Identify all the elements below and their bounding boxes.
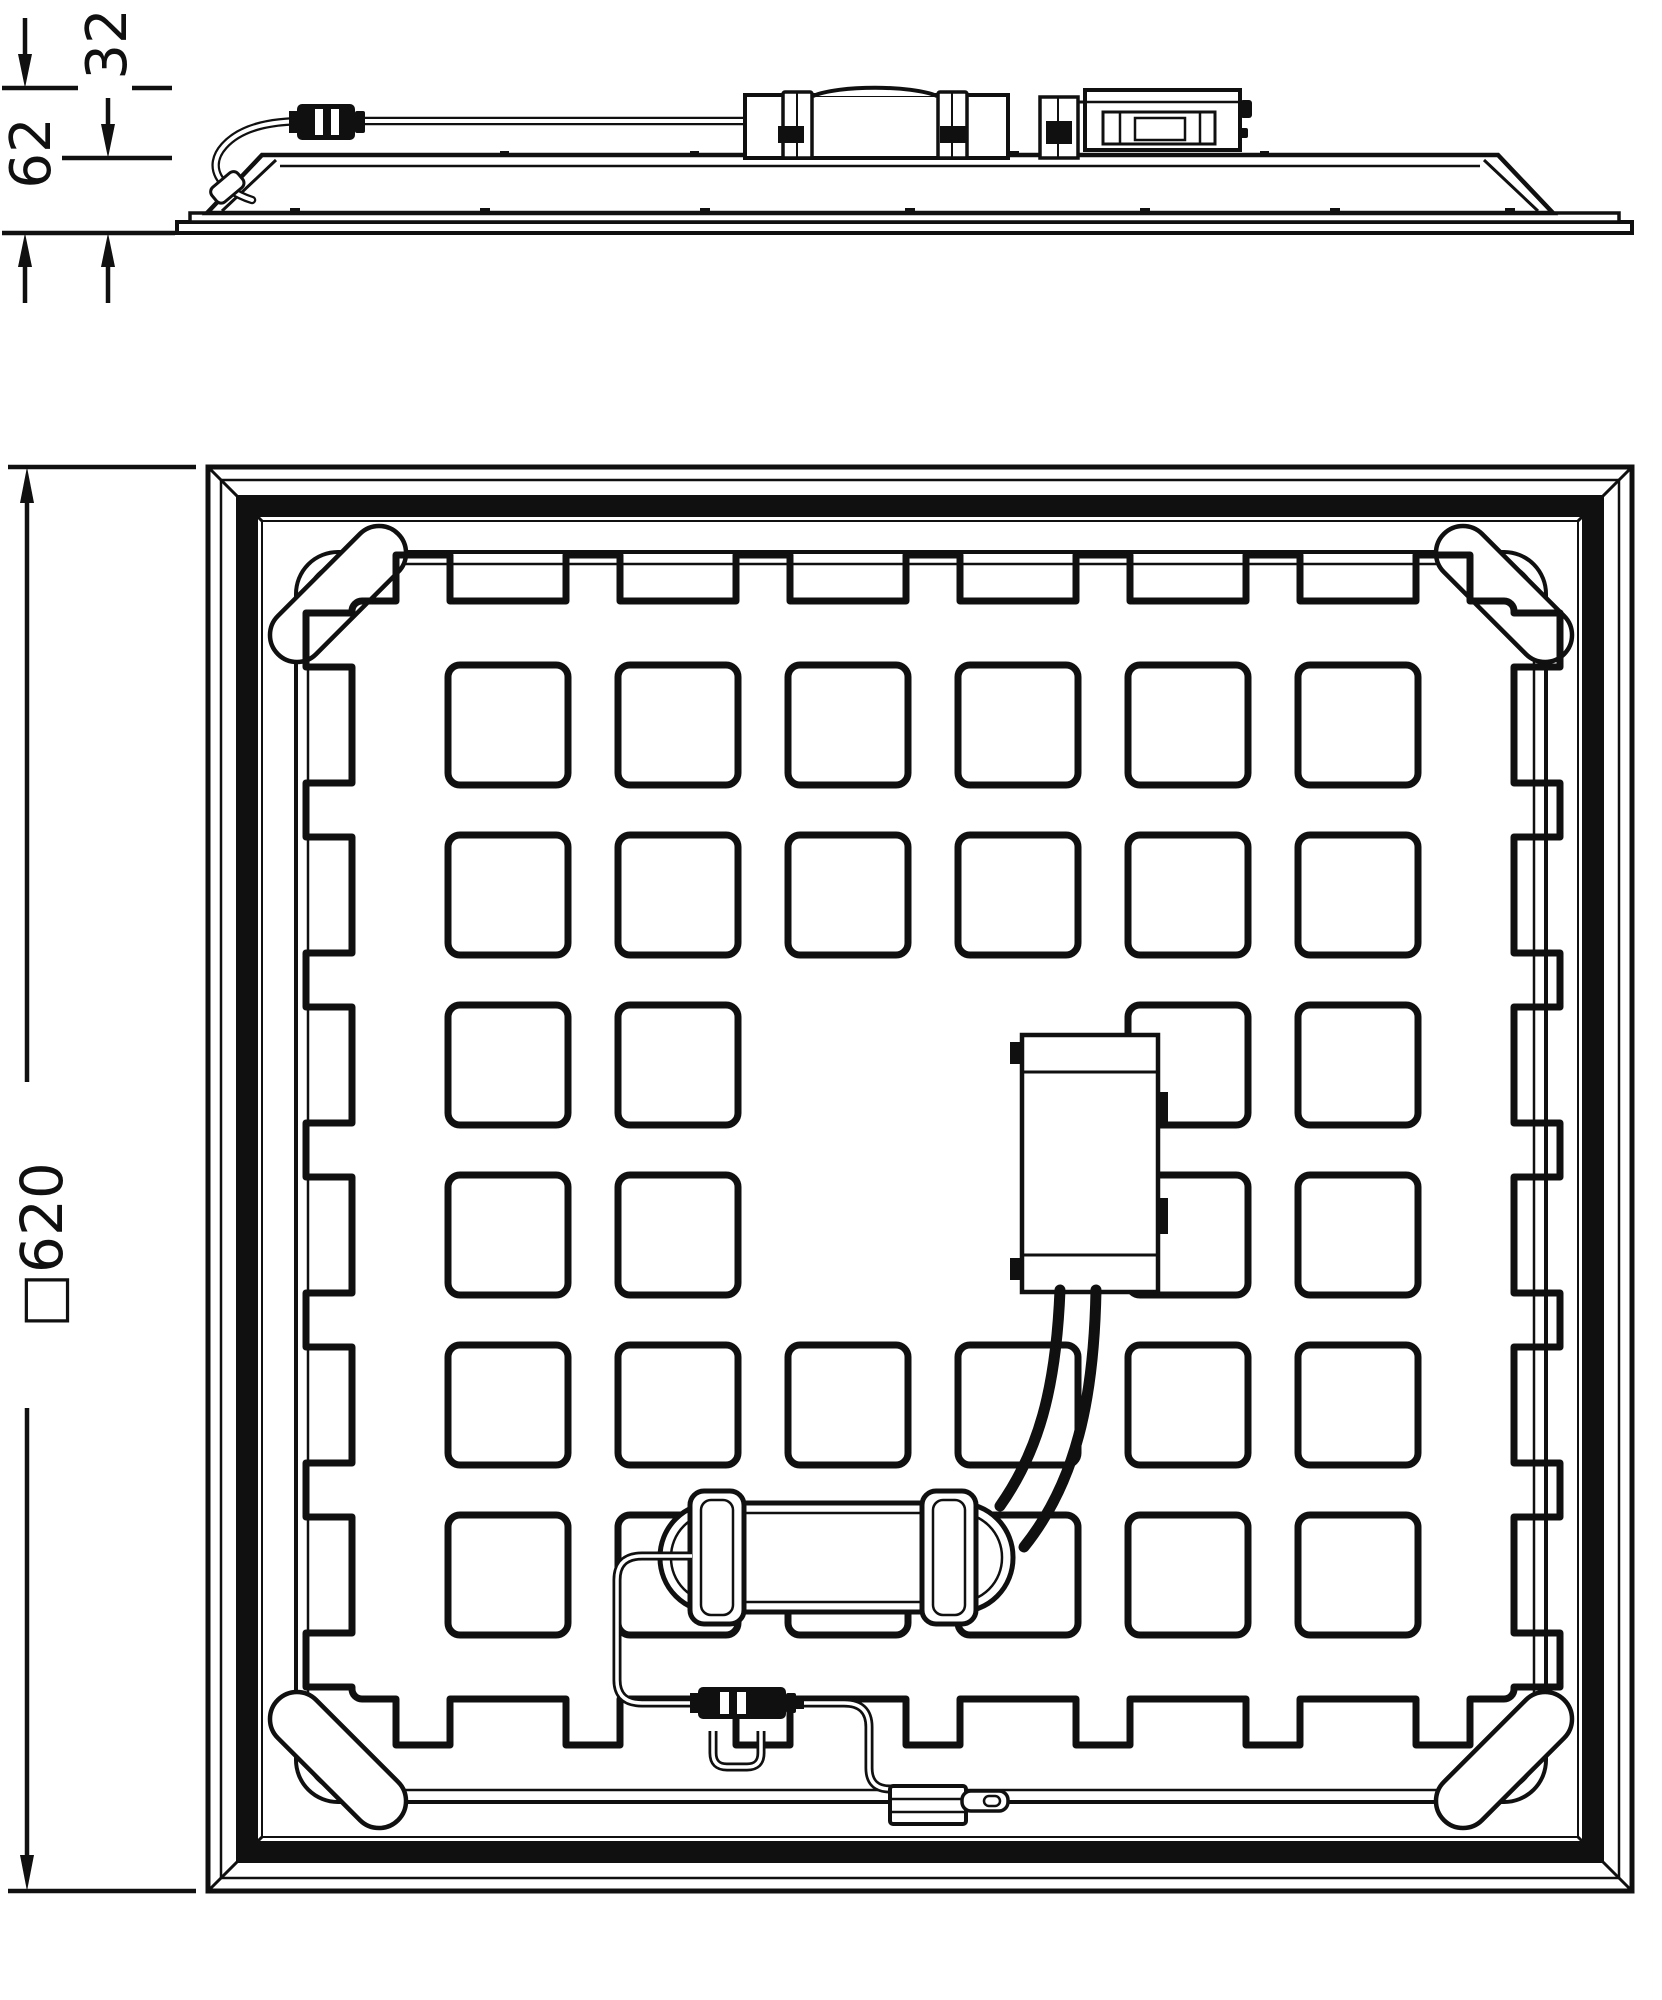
arrow-icon bbox=[20, 467, 34, 503]
arrow-icon bbox=[101, 233, 115, 267]
driver-box-rear bbox=[1010, 1035, 1168, 1292]
arrow-icon bbox=[20, 1855, 34, 1891]
end-connector bbox=[890, 1786, 1008, 1824]
driver-hump bbox=[813, 88, 937, 96]
capsule-clamp bbox=[922, 1491, 976, 1624]
side-view bbox=[177, 88, 1632, 233]
driver-box-side bbox=[745, 88, 1008, 158]
capsule-clamp bbox=[690, 1491, 744, 1624]
arrow-icon bbox=[18, 54, 32, 88]
drawing-sheet: 62 32 bbox=[0, 0, 1662, 2000]
dimension-panel-size: □620 bbox=[8, 467, 196, 1891]
terminal-block-side bbox=[1085, 90, 1252, 150]
arrow-icon bbox=[18, 233, 32, 267]
dimension-side-panel: 32 bbox=[62, 8, 172, 303]
mounting-bracket-side bbox=[1040, 97, 1085, 158]
inline-connector-side bbox=[289, 104, 365, 140]
technical-drawing: 62 32 bbox=[0, 0, 1662, 2000]
dimension-label-32: 32 bbox=[75, 8, 140, 79]
arrow-icon bbox=[101, 124, 115, 158]
rear-view bbox=[208, 467, 1632, 1891]
dimension-label-620: □620 bbox=[8, 1162, 76, 1328]
dimension-label-62: 62 bbox=[0, 117, 64, 188]
panel-body-profile bbox=[207, 155, 1553, 213]
driver-capsule bbox=[660, 1491, 1013, 1624]
